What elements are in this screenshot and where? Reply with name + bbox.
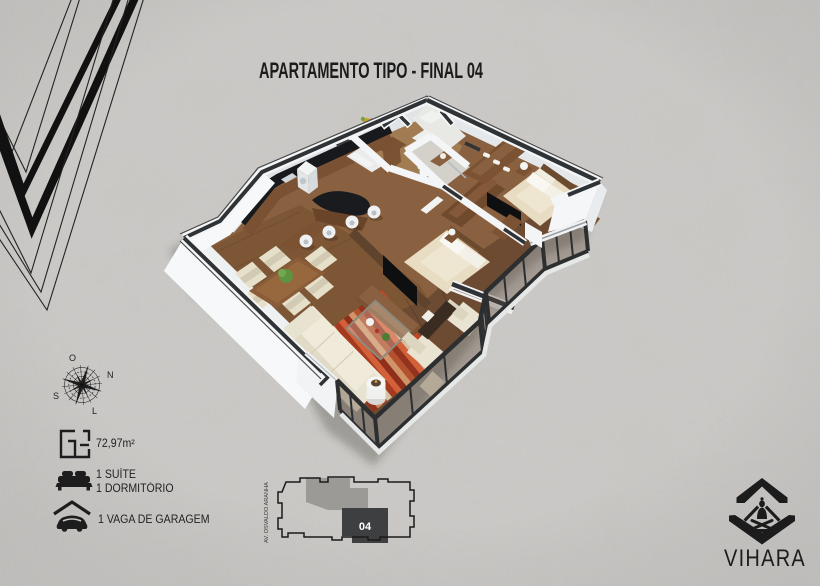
svg-text:04: 04 [359,521,372,533]
svg-text:N: N [107,370,114,380]
svg-text:O: O [69,353,76,363]
svg-text:VIHARA: VIHARA [724,545,806,572]
svg-text:S: S [53,391,59,401]
svg-text:AV. OSVALDO ARANHA: AV. OSVALDO ARANHA [264,482,270,543]
svg-text:L: L [92,406,97,416]
